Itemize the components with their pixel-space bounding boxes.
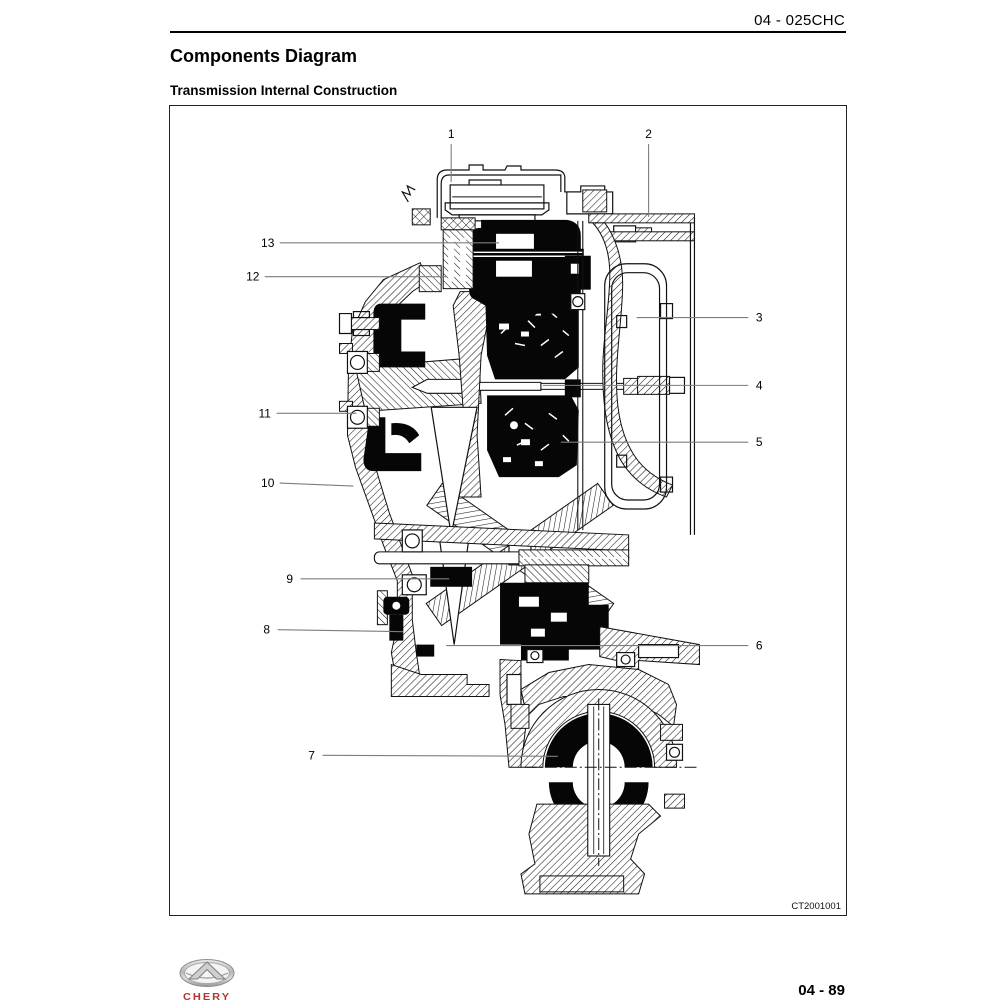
callout-label-9: 9 [286, 572, 293, 586]
figure-frame: 12131234115109867 CT2001001 [169, 105, 847, 916]
manual-page: 04 - 025CHC Components Diagram Transmiss… [0, 0, 1008, 1008]
output-gear-assembly [500, 565, 609, 661]
planetary-gear-assembly [453, 292, 581, 497]
callout-label-1: 1 [448, 127, 455, 141]
header-section-code: 04 - 025CHC [170, 12, 845, 29]
callout-label-5: 5 [756, 435, 763, 449]
brand-logo: CHERY [176, 958, 238, 1003]
figure-svg: 12131234115109867 [170, 106, 846, 915]
header-rule [170, 31, 846, 33]
callout-label-11: 11 [259, 406, 272, 420]
callout-label-13: 13 [261, 236, 275, 250]
page-title: Components Diagram [170, 46, 357, 67]
torque-converter-housing [593, 223, 673, 509]
callout-label-2: 2 [645, 127, 652, 141]
callout-label-4: 4 [756, 378, 763, 392]
callout-label-3: 3 [756, 311, 763, 325]
top-cover [437, 165, 581, 221]
callout-label-6: 6 [756, 639, 763, 653]
final-drive-differential [500, 627, 699, 894]
callout-label-10: 10 [261, 476, 275, 490]
page-subtitle: Transmission Internal Construction [170, 83, 397, 98]
case-flange-right [567, 186, 695, 535]
callout-leader-10 [280, 483, 354, 486]
callout-label-8: 8 [263, 623, 270, 637]
figure-code: CT2001001 [791, 901, 841, 912]
callout-label-12: 12 [246, 270, 260, 284]
brand-name: CHERY [176, 991, 238, 1002]
callout-leader-8 [278, 630, 404, 632]
page-number: 04 - 89 [798, 982, 845, 999]
callout-label-7: 7 [308, 748, 315, 762]
chery-emblem-icon [178, 958, 236, 988]
